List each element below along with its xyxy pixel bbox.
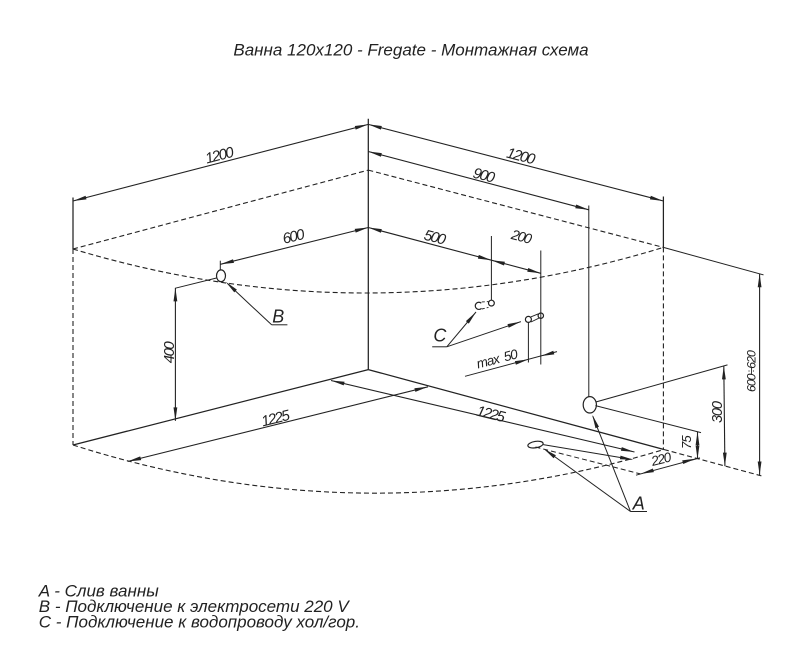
svg-text:B: B	[272, 307, 284, 327]
svg-text:Ванна 120x120 - Fregate - Монт: Ванна 120x120 - Fregate - Монтажная схем…	[233, 41, 588, 60]
svg-text:75: 75	[679, 435, 694, 449]
svg-text:C - Подключение к водопроводу: C - Подключение к водопроводу хол/гор.	[39, 613, 360, 632]
svg-text:600÷620: 600÷620	[744, 350, 758, 392]
svg-text:300: 300	[710, 401, 726, 423]
svg-text:A: A	[632, 494, 645, 514]
svg-text:C: C	[433, 326, 447, 346]
svg-text:400: 400	[161, 341, 178, 364]
